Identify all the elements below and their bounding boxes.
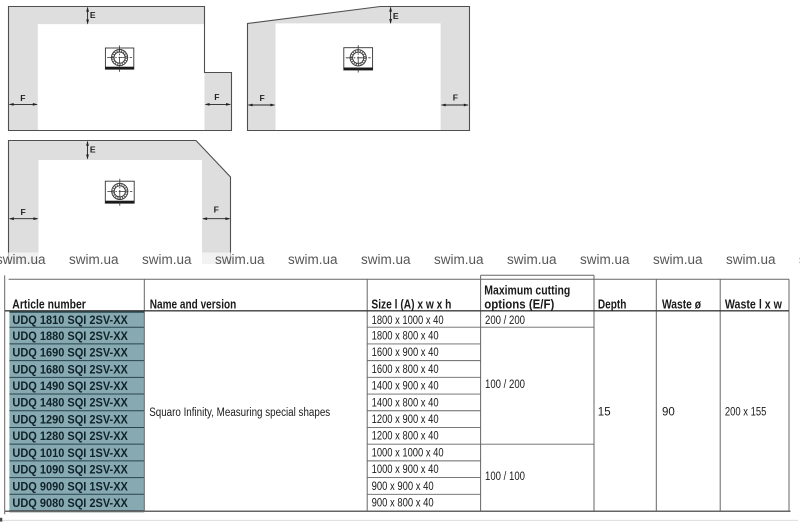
svg-text:UDQ 1480 SQI 2SV-XX: UDQ 1480 SQI 2SV-XX	[12, 396, 128, 410]
svg-text:1800 x 1000 x 40: 1800 x 1000 x 40	[372, 315, 444, 327]
svg-text:UDQ 1690 SQI 2SV-XX: UDQ 1690 SQI 2SV-XX	[12, 346, 128, 360]
svg-text:swim.ua: swim.ua	[215, 252, 265, 267]
svg-text:F: F	[21, 207, 26, 217]
svg-text:UDQ 9090 SQI 1SV-XX: UDQ 9090 SQI 1SV-XX	[12, 479, 128, 493]
svg-text:15: 15	[598, 407, 611, 419]
svg-text:900 x 900 x 40: 900 x 900 x 40	[372, 481, 434, 493]
svg-text:E: E	[393, 11, 399, 21]
svg-text:F: F	[20, 93, 25, 103]
svg-text:UDQ 1680 SQI 2SV-XX: UDQ 1680 SQI 2SV-XX	[12, 362, 128, 376]
svg-text:90: 90	[662, 407, 675, 419]
svg-text:swim.ua: swim.ua	[580, 252, 630, 267]
svg-text:swim.ua: swim.ua	[0, 252, 46, 267]
svg-text:1400 x 900 x 40: 1400 x 900 x 40	[372, 381, 439, 393]
svg-text:1200 x 900 x 40: 1200 x 900 x 40	[372, 414, 439, 426]
svg-text:Name and version: Name and version	[150, 297, 237, 311]
svg-text:Maximum cutting: Maximum cutting	[484, 283, 570, 297]
svg-text:1800 x 800 x 40: 1800 x 800 x 40	[372, 330, 439, 342]
svg-text:1600 x 800 x 40: 1600 x 800 x 40	[372, 364, 439, 376]
svg-text:F: F	[214, 205, 219, 215]
svg-text:Waste l x w: Waste l x w	[725, 297, 782, 311]
svg-text:swim.ua: swim.ua	[434, 252, 484, 267]
svg-text:swim.ua: swim.ua	[361, 252, 411, 267]
svg-text:Squaro Infinity, Measuring spe: Squaro Infinity, Measuring special shape…	[149, 407, 330, 419]
svg-text:UDQ 1490 SQI 2SV-XX: UDQ 1490 SQI 2SV-XX	[12, 379, 128, 393]
svg-text:swim.ua: swim.ua	[653, 252, 703, 267]
svg-text:E: E	[90, 10, 96, 20]
svg-text:100 / 100: 100 / 100	[485, 471, 525, 483]
svg-text:swim.ua: swim.ua	[69, 252, 119, 267]
svg-text:1400 x 800 x 40: 1400 x 800 x 40	[372, 397, 439, 409]
svg-text:Waste ø: Waste ø	[662, 297, 701, 311]
svg-text:UDQ 9080 SQI 2SV-XX: UDQ 9080 SQI 2SV-XX	[12, 496, 128, 510]
svg-text:Size l (A) x w x h: Size l (A) x w x h	[371, 297, 451, 311]
svg-text:900 x 800 x 40: 900 x 800 x 40	[372, 498, 434, 510]
svg-text:F: F	[453, 92, 458, 102]
svg-text:swim.ua: swim.ua	[507, 252, 557, 267]
svg-text:UDQ 1290 SQI 2SV-XX: UDQ 1290 SQI 2SV-XX	[12, 412, 128, 426]
svg-text:UDQ 1810 SQI 2SV-XX: UDQ 1810 SQI 2SV-XX	[12, 313, 128, 327]
svg-text:100 / 200: 100 / 200	[485, 379, 525, 391]
svg-text:1000 x 900 x 40: 1000 x 900 x 40	[372, 464, 439, 476]
svg-text:F: F	[260, 93, 265, 103]
svg-text:1000 x 1000 x 40: 1000 x 1000 x 40	[372, 447, 444, 459]
svg-text:swim.ua: swim.ua	[142, 252, 192, 267]
svg-text:swim.ua: swim.ua	[288, 252, 338, 267]
svg-text:UDQ 1010 SQI 1SV-XX: UDQ 1010 SQI 1SV-XX	[12, 446, 128, 460]
svg-text:Article number: Article number	[12, 297, 86, 311]
svg-text:200 / 200: 200 / 200	[485, 315, 525, 327]
svg-text:Depth: Depth	[598, 297, 627, 311]
svg-text:E: E	[90, 145, 96, 155]
svg-text:swim.ua: swim.ua	[726, 252, 776, 267]
svg-text:1200 x 800 x 40: 1200 x 800 x 40	[372, 431, 439, 443]
svg-text:F: F	[214, 92, 219, 102]
svg-text:1600 x 900 x 40: 1600 x 900 x 40	[372, 347, 439, 359]
svg-text:UDQ 1090 SQI 2SV-XX: UDQ 1090 SQI 2SV-XX	[12, 463, 128, 477]
svg-text:UDQ 1880 SQI 2SV-XX: UDQ 1880 SQI 2SV-XX	[12, 329, 128, 343]
svg-text:UDQ 1280 SQI 2SV-XX: UDQ 1280 SQI 2SV-XX	[12, 429, 128, 443]
svg-text:options (E/F): options (E/F)	[484, 297, 554, 311]
svg-text:200 x 155: 200 x 155	[725, 407, 767, 419]
